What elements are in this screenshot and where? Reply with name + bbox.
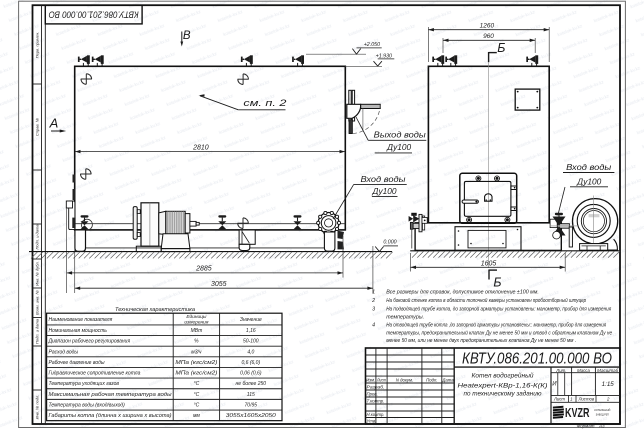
svg-text:Пров.: Пров. xyxy=(367,391,378,396)
svg-text:Расход воды: Расход воды xyxy=(49,349,79,355)
svg-text:2: 2 xyxy=(606,397,610,402)
svg-text:не более 250: не более 250 xyxy=(236,381,267,387)
svg-text:Лит.: Лит. xyxy=(555,368,566,373)
svg-text:Лист: Лист xyxy=(376,377,386,382)
svg-text:1605: 1605 xyxy=(481,261,497,268)
svg-text:менее 50 мм, или не менее дву: менее 50 мм, или не менее двух предохран… xyxy=(386,338,576,344)
svg-text:50-100: 50-100 xyxy=(243,339,259,345)
svg-text:1260: 1260 xyxy=(480,23,495,30)
svg-text:1:15: 1:15 xyxy=(602,381,615,388)
svg-text:0,06 (0,6): 0,06 (0,6) xyxy=(240,371,262,377)
svg-text:960: 960 xyxy=(483,33,494,40)
svg-text:Разраб.: Разраб. xyxy=(367,384,385,389)
svg-text:3055х1605х2050: 3055х1605х2050 xyxy=(226,413,276,419)
svg-text:А: А xyxy=(49,116,59,131)
svg-text:2885: 2885 xyxy=(195,266,212,273)
svg-text:ЗАВОД РЗП: ЗАВОД РЗП xyxy=(596,412,609,416)
svg-text:температуры, предохранительный: температуры, предохранительный клапан Ду… xyxy=(386,329,612,336)
svg-text:Максимальная рабочая температу: Максимальная рабочая температура воды xyxy=(49,392,172,398)
svg-text:А3: А3 xyxy=(598,424,605,429)
svg-text:2: 2 xyxy=(371,298,375,304)
svg-text:по техническому заданию: по техническому заданию xyxy=(464,391,542,398)
svg-text:Температура уходящих газов: Температура уходящих газов xyxy=(49,381,120,387)
svg-text:температуры.: температуры. xyxy=(386,314,424,320)
svg-text:Температура воды (вход/выход): Температура воды (вход/выход) xyxy=(49,403,126,409)
svg-text:Рабочее давление воды: Рабочее давление воды xyxy=(49,360,105,366)
svg-text:Т.контр.: Т.контр. xyxy=(367,398,385,403)
svg-text:Б: Б xyxy=(493,276,501,290)
svg-text:°С: °С xyxy=(194,381,200,387)
svg-text:На боковой стенке котла в обла: На боковой стенке котла в области топочн… xyxy=(386,297,586,304)
svg-text:0.000: 0.000 xyxy=(383,240,396,246)
svg-text:Вход воды: Вход воды xyxy=(566,162,611,172)
svg-text:Ду100: Ду100 xyxy=(371,186,396,196)
svg-text:КВТУ.086.201.00.000 ВО: КВТУ.086.201.00.000 ВО xyxy=(462,351,612,368)
svg-text:На подводящей трубе котла, д: На подводящей трубе котла, до запорной а… xyxy=(386,305,611,312)
svg-text:Подп. и дата: Подп. и дата xyxy=(35,318,40,344)
svg-text:Дата: Дата xyxy=(441,377,454,382)
svg-text:МВт: МВт xyxy=(191,328,203,334)
svg-text:В: В xyxy=(183,30,191,42)
svg-text:Техническая характеристика: Техническая характеристика xyxy=(115,307,195,313)
svg-text:м3/ч: м3/ч xyxy=(191,349,202,355)
svg-text:Формат: Формат xyxy=(577,424,595,429)
svg-text:На отводящей трубе котла ,до з: На отводящей трубе котла ,до запорной ар… xyxy=(386,321,606,328)
svg-text:Вход воды: Вход воды xyxy=(361,174,406,184)
svg-text:N докум.: N докум. xyxy=(396,377,413,382)
svg-text:Котел водогрейный: Котел водогрейный xyxy=(472,373,535,380)
svg-text:70/95: 70/95 xyxy=(245,403,258,409)
svg-text:Гидравлическое сопротивление к: Гидравлическое сопротивление котла xyxy=(49,371,141,377)
svg-text:Взам. инв. №: Взам. инв. № xyxy=(35,289,40,314)
svg-text:Инв. № дубл.: Инв. № дубл. xyxy=(35,261,40,286)
svg-text:Утв.: Утв. xyxy=(367,419,377,424)
svg-text:4: 4 xyxy=(372,322,375,328)
svg-text:Ду100: Ду100 xyxy=(576,176,601,186)
svg-text:0,6 (6,0): 0,6 (6,0) xyxy=(241,360,260,366)
svg-text:KVZR: KVZR xyxy=(565,406,590,420)
svg-text:Масса: Масса xyxy=(577,368,590,373)
svg-text:Наименование показателя: Наименование показателя xyxy=(49,317,113,323)
svg-text:Габариты котла (длинна х ширин: Габариты котла (длинна х ширина х высота… xyxy=(49,413,172,419)
svg-text:Н.контр.: Н.контр. xyxy=(367,412,385,417)
svg-text:Все размеры для справок, допус: Все размеры для справок, допустимое откл… xyxy=(386,289,539,295)
svg-text:Перв. примен.: Перв. примен. xyxy=(35,32,40,59)
svg-text:3: 3 xyxy=(372,306,375,312)
svg-text:мм: мм xyxy=(193,413,200,419)
svg-text:Номинальная мощность: Номинальная мощность xyxy=(49,328,108,334)
svg-text:Изм.: Изм. xyxy=(366,377,375,382)
svg-text:Подп.: Подп. xyxy=(426,377,437,382)
svg-text:°С: °С xyxy=(194,392,200,398)
svg-text:Значение: Значение xyxy=(240,317,262,323)
svg-text:Листов: Листов xyxy=(577,397,594,402)
svg-text:МПа (кгс/см2): МПа (кгс/см2) xyxy=(175,360,217,366)
svg-text:3055: 3055 xyxy=(211,281,227,288)
svg-text:Единицы: Единицы xyxy=(186,314,207,320)
svg-text:4,0: 4,0 xyxy=(247,349,254,355)
svg-text:2810: 2810 xyxy=(192,145,209,152)
svg-text:Подп. и дата: Подп. и дата xyxy=(35,224,40,250)
svg-text:Выход воды: Выход воды xyxy=(374,129,426,139)
svg-text:Heatexpert-КВр-1,16-К(К): Heatexpert-КВр-1,16-К(К) xyxy=(458,383,548,390)
svg-text:измерения: измерения xyxy=(184,320,208,325)
svg-text:КВТУ.086.201.00.000 ВО: КВТУ.086.201.00.000 ВО xyxy=(48,9,139,20)
svg-text:Лист: Лист xyxy=(553,397,565,402)
svg-text:МПа (кгс/см2): МПа (кгс/см2) xyxy=(175,371,217,377)
svg-text:+2.050: +2.050 xyxy=(364,42,380,48)
svg-text:115: 115 xyxy=(247,392,255,398)
svg-text:1: 1 xyxy=(372,289,375,295)
svg-text:Масштаб: Масштаб xyxy=(597,368,619,373)
svg-text:Справ. №: Справ. № xyxy=(35,117,40,136)
svg-text:°С: °С xyxy=(194,403,200,409)
svg-text:см. п. 2: см. п. 2 xyxy=(243,98,287,109)
svg-text:Диапазон рабочего регулировани: Диапазон рабочего регулирования xyxy=(48,339,131,345)
svg-text:1,16: 1,16 xyxy=(246,328,256,334)
svg-text:Ду100: Ду100 xyxy=(386,142,411,152)
svg-text:Инв. № подл.: Инв. № подл. xyxy=(35,395,40,420)
svg-text:И: И xyxy=(552,382,557,388)
svg-text:%: % xyxy=(194,339,199,345)
svg-text:Б: Б xyxy=(497,41,505,55)
